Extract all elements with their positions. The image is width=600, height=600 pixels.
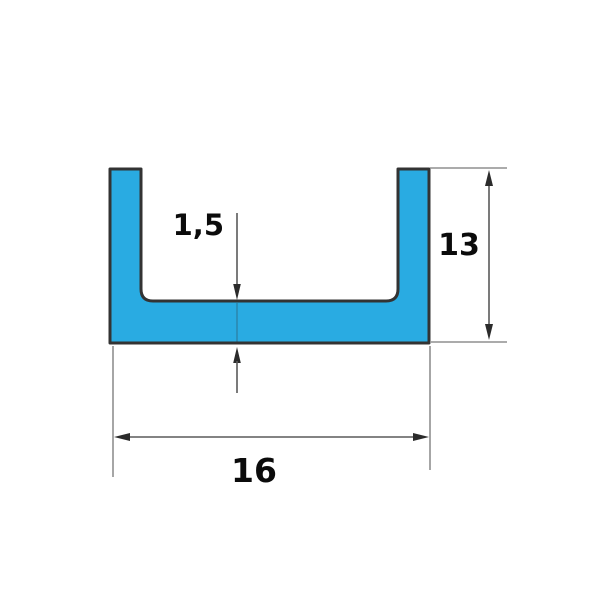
width-arrow-right-icon: [413, 433, 429, 441]
height-arrow-down-icon: [485, 324, 493, 340]
drawing-canvas: 1,5 13 16: [0, 0, 600, 600]
thickness-dimension-label: 1,5: [173, 208, 224, 242]
height-dimension-label: 13: [438, 228, 480, 263]
width-dimension-label: 16: [231, 451, 277, 490]
width-arrow-left-icon: [114, 433, 130, 441]
u-channel-technical-drawing: 1,5 13 16: [0, 0, 600, 600]
thickness-arrow-down-icon: [233, 284, 241, 300]
thickness-arrow-up-icon: [233, 347, 241, 363]
u-channel-profile-shape: [110, 169, 429, 343]
height-arrow-up-icon: [485, 170, 493, 186]
